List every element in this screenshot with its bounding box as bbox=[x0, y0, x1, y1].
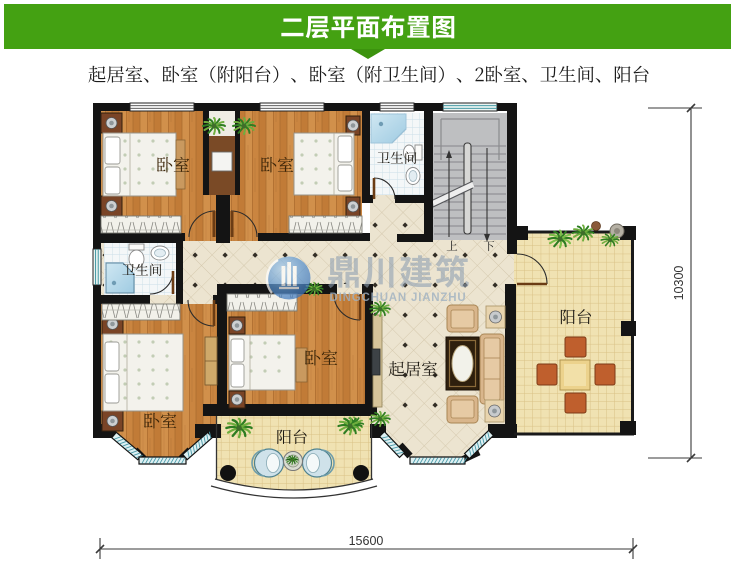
svg-text:DINGCHUAN JIANZHU: DINGCHUAN JIANZHU bbox=[330, 292, 467, 304]
svg-text:15600: 15600 bbox=[349, 534, 384, 548]
svg-text:10300: 10300 bbox=[672, 266, 686, 301]
